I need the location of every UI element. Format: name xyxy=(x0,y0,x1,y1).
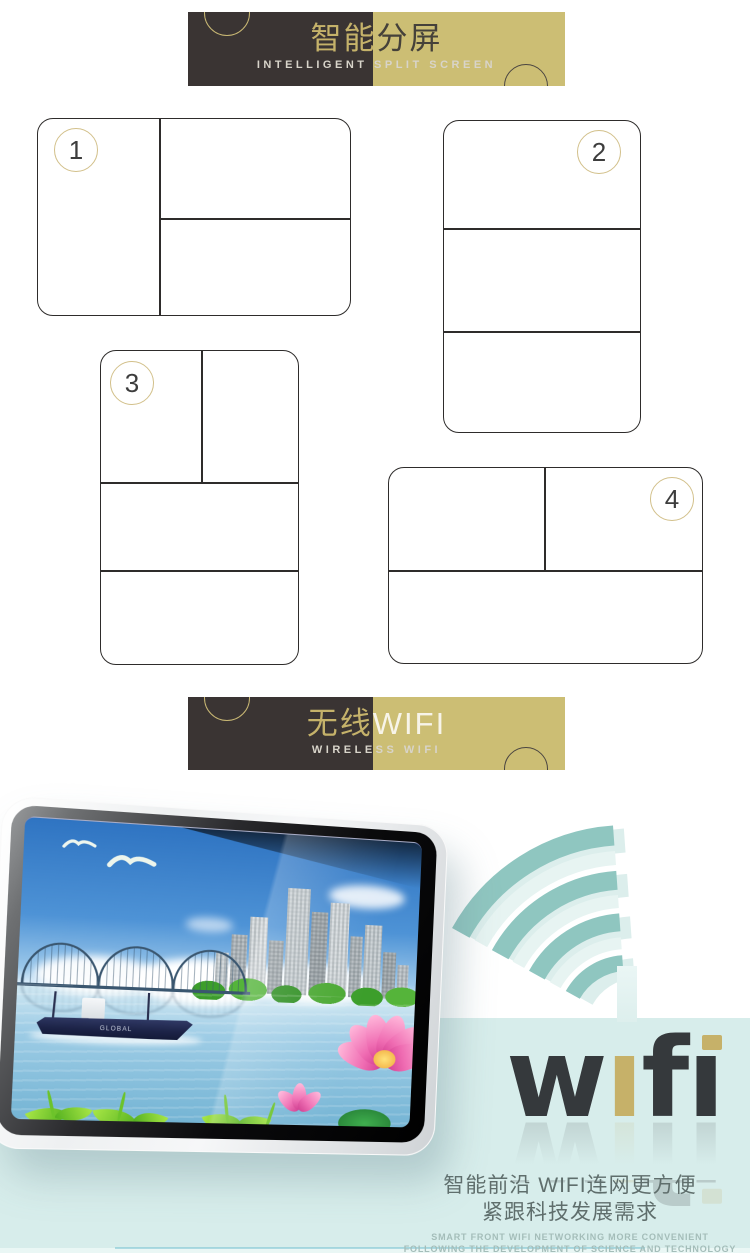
footer-cn-line2: 紧跟科技发展需求 xyxy=(370,1199,750,1226)
layout-number: 4 xyxy=(665,484,679,515)
divider-horizontal xyxy=(101,482,298,484)
footer-en-line1: SMART FRONT WIFI NETWORKING MORE CONVENI… xyxy=(370,1231,750,1243)
wifi-logo: wıfı xyxy=(506,1014,723,1143)
bridge-arch xyxy=(172,948,249,992)
footer-en-line2: FOLLOWING THE DEVELOPMENT OF SCIENCE AND… xyxy=(370,1243,750,1253)
logo-i-dot xyxy=(702,1035,722,1050)
divider-horizontal xyxy=(444,228,640,230)
ship-superstructure xyxy=(81,998,106,1020)
banner-title: 无线WIFI xyxy=(188,707,565,741)
banner-split-screen: 智能分屏 INTELLIGENT SPLIT SCREEN xyxy=(188,12,565,86)
seagull-icon xyxy=(62,834,100,851)
banner-wireless-wifi: 无线WIFI WIRELESS WIFI xyxy=(188,697,565,770)
split-layout-2: 2 xyxy=(443,120,641,433)
bridge-arch xyxy=(20,941,101,987)
bridge-arch xyxy=(97,944,176,989)
footer-text-block: 智能前沿 WIFI连网更方便 紧跟科技发展需求 SMART FRONT WIFI… xyxy=(370,1172,750,1253)
lotus-flower-large xyxy=(344,1018,423,1099)
promo-page: 智能分屏 INTELLIGENT SPLIT SCREEN 1 2 3 4 无线… xyxy=(0,0,750,1253)
banner-title-cn-left: 智能 xyxy=(311,21,377,56)
layout-number-badge: 3 xyxy=(110,361,154,405)
logo-letter-f: f xyxy=(641,1014,687,1143)
footer-cn-line1: 智能前沿 WIFI连网更方便 xyxy=(370,1172,750,1199)
divider-vertical xyxy=(159,119,161,315)
banner-title-cn: 无线 xyxy=(307,706,373,741)
divider-horizontal xyxy=(389,570,702,572)
layout-number-badge: 1 xyxy=(54,128,98,172)
layout-number-badge: 4 xyxy=(650,477,694,521)
banner-subtitle: INTELLIGENT SPLIT SCREEN xyxy=(188,59,565,71)
layout-number: 1 xyxy=(69,135,83,166)
display-monitor: GLOBAL xyxy=(0,795,449,1156)
monitor-frame: GLOBAL xyxy=(0,795,449,1156)
banner-subtitle: WIRELESS WIFI xyxy=(188,744,565,756)
divider-horizontal xyxy=(101,570,298,572)
layout-number: 2 xyxy=(592,137,606,168)
split-layout-1: 1 xyxy=(37,118,351,316)
cargo-ship: GLOBAL xyxy=(36,999,194,1043)
layout-number-badge: 2 xyxy=(577,130,621,174)
banner-title: 智能分屏 xyxy=(188,22,565,56)
logo-letter-w: w xyxy=(506,1014,606,1143)
logo-letter-i-gold: ı xyxy=(606,1014,642,1143)
lotus-flower-small xyxy=(277,1085,320,1123)
ship-mast xyxy=(147,993,151,1023)
split-layout-4: 4 xyxy=(388,467,703,664)
logo-letter-i-stem: ı xyxy=(687,1014,723,1142)
layout-number: 3 xyxy=(125,368,139,399)
seagull-icon xyxy=(106,849,159,873)
monitor-screen: GLOBAL xyxy=(11,816,422,1128)
logo-letter-i: ı xyxy=(687,1014,723,1143)
banner-title-en: WIFI xyxy=(373,706,446,741)
divider-vertical xyxy=(544,468,546,570)
divider-horizontal xyxy=(159,218,350,220)
split-layout-3: 3 xyxy=(100,350,299,665)
wifi-signal-icon xyxy=(450,818,750,1025)
ship-name: GLOBAL xyxy=(99,1026,132,1033)
banner-title-cn-right: 分屏 xyxy=(377,21,443,56)
divider-horizontal xyxy=(444,331,640,333)
monitor-bezel: GLOBAL xyxy=(0,804,437,1142)
divider-vertical xyxy=(201,351,203,482)
